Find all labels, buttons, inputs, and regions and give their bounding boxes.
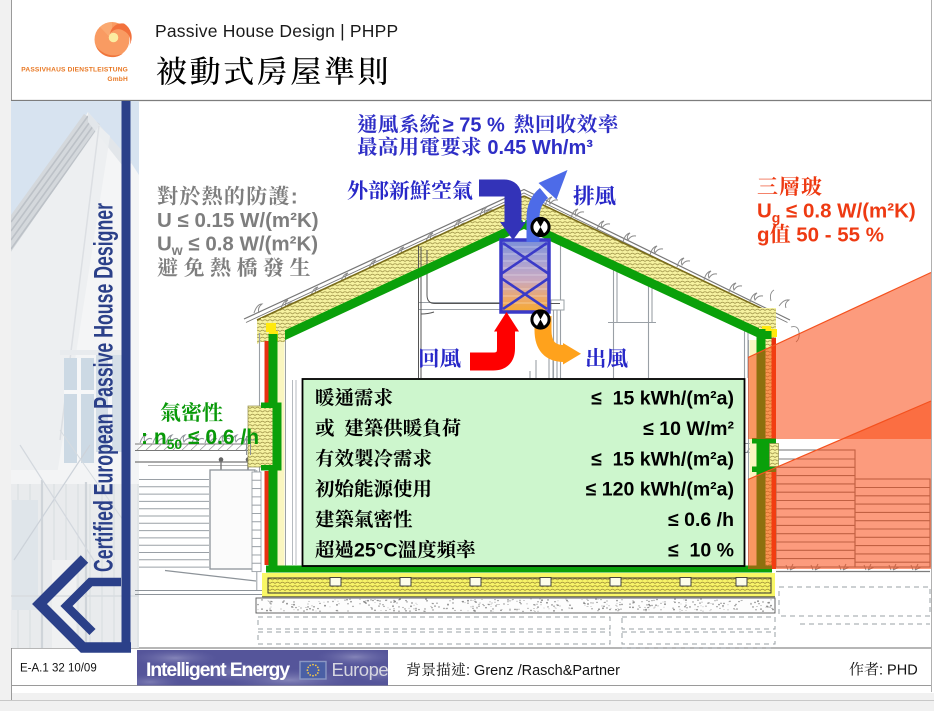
svg-text:g: g [757, 224, 770, 247]
svg-text:≤ 10 W/m²: ≤ 10 W/m² [643, 418, 734, 440]
svg-text:≤ 0.6 /h: ≤ 0.6 /h [182, 426, 259, 449]
svg-text:≤ 0.8 W/(m²K): ≤ 0.8 W/(m²K) [780, 200, 915, 223]
svg-text:Certified European Passive Hou: Certified European Passive House Designe… [89, 203, 119, 572]
svg-text:≤ 0.6 /h: ≤ 0.6 /h [668, 509, 734, 531]
svg-text:U ≤ 0.15 W/(m²K): U ≤ 0.15 W/(m²K) [157, 209, 319, 232]
svg-text:U: U [757, 200, 772, 223]
svg-text:: PHD: : PHD [879, 663, 918, 679]
svg-text:Intelligent Energy: Intelligent Energy [146, 659, 290, 681]
svg-text:U: U [157, 233, 172, 256]
svg-text:≤ 10 %: ≤ 10 % [668, 540, 734, 562]
svg-text:≤ 15 kWh/(m²a): ≤ 15 kWh/(m²a) [591, 388, 734, 410]
svg-text:≤ 15 kWh/(m²a): ≤ 15 kWh/(m²a) [591, 448, 734, 470]
svg-text:25°C: 25°C [354, 540, 398, 562]
svg-text:PASSIVHAUS DIENSTLEISTUNG: PASSIVHAUS DIENSTLEISTUNG [21, 67, 128, 74]
svg-text:50: 50 [167, 436, 183, 452]
svg-text:: n: : n [141, 426, 167, 449]
svg-text:w: w [171, 242, 183, 258]
svg-text:: Grenz /Rasch&Partner: : Grenz /Rasch&Partner [466, 663, 620, 679]
svg-text:≥ 75 %: ≥ 75 % [443, 115, 505, 137]
svg-text::: : [291, 186, 298, 209]
svg-text:0.45 Wh/m³: 0.45 Wh/m³ [482, 137, 593, 159]
svg-text:E-A.1 32 10/09: E-A.1 32 10/09 [20, 663, 97, 675]
svg-text:50 - 55 %: 50 - 55 % [791, 224, 884, 247]
svg-text:GmbH: GmbH [107, 76, 128, 83]
svg-text:≤ 120 kWh/(m²a): ≤ 120 kWh/(m²a) [586, 479, 734, 501]
svg-text:g: g [772, 210, 781, 226]
svg-text:≤ 0.8 W/(m²K): ≤ 0.8 W/(m²K) [183, 233, 318, 256]
svg-text:Europe: Europe [332, 659, 389, 680]
svg-text:Passive House Design | PHPP: Passive House Design | PHPP [155, 21, 398, 41]
